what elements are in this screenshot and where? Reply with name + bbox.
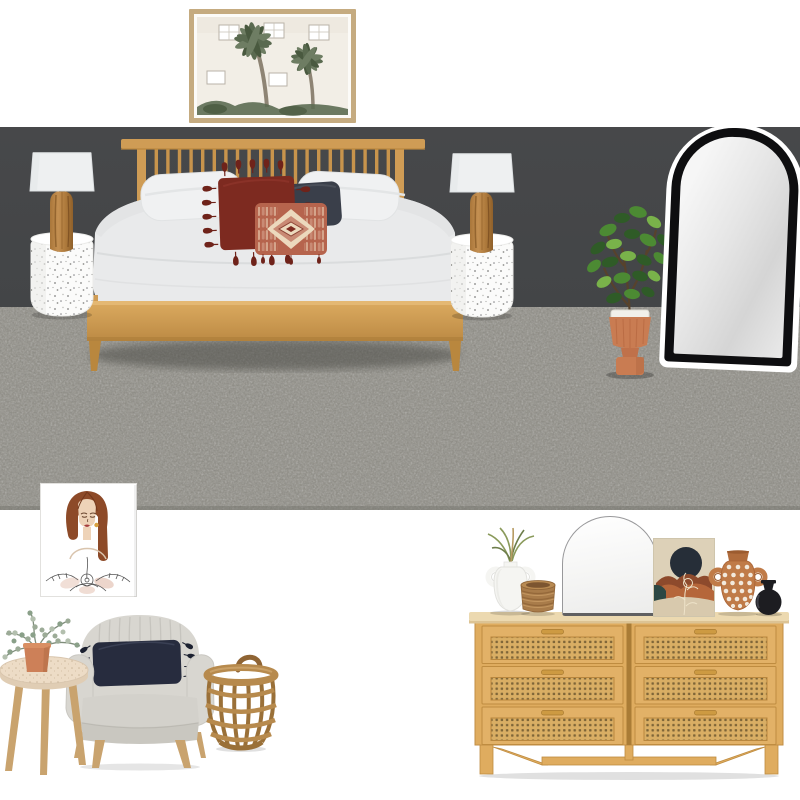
basket-weave (206, 668, 276, 749)
basket-rope[interactable] (517, 578, 559, 616)
dresser-base (480, 745, 778, 774)
drawer-handle[interactable] (542, 630, 564, 635)
earring (94, 523, 98, 527)
lamp-shade (30, 153, 94, 191)
mirror-arch-white[interactable] (562, 516, 658, 616)
lamp-shade (450, 154, 514, 192)
drawer-handle[interactable] (542, 670, 564, 675)
dried-grass (488, 528, 534, 562)
mirror-glass (673, 135, 791, 358)
art-print-abstract[interactable] (653, 538, 715, 617)
bed-shadow (89, 340, 461, 370)
vase-black[interactable] (750, 580, 788, 616)
terracotta-pot-small (23, 643, 51, 672)
dresser-rattan[interactable] (468, 608, 790, 780)
mood-board-canvas (0, 0, 800, 800)
terracotta-planter (609, 310, 651, 375)
armchair-seat (81, 694, 199, 727)
eucalyptus-pot-plant[interactable] (0, 608, 98, 678)
nightstand-group-left (26, 149, 98, 321)
drawer-handle[interactable] (695, 711, 717, 716)
nightstand-group-right (446, 150, 518, 322)
framed-art-palms[interactable] (189, 9, 356, 123)
drawer-handle[interactable] (695, 630, 717, 635)
dresser-center-divider (627, 623, 632, 745)
portrait-line-art[interactable] (40, 483, 137, 597)
basket-woven[interactable] (202, 650, 280, 754)
floor-mirror-black[interactable] (659, 121, 800, 373)
bed-timber-spindle[interactable] (85, 133, 465, 388)
drawer-handle[interactable] (542, 711, 564, 716)
drawer-handle[interactable] (695, 670, 717, 675)
fig-leaves (585, 204, 671, 305)
